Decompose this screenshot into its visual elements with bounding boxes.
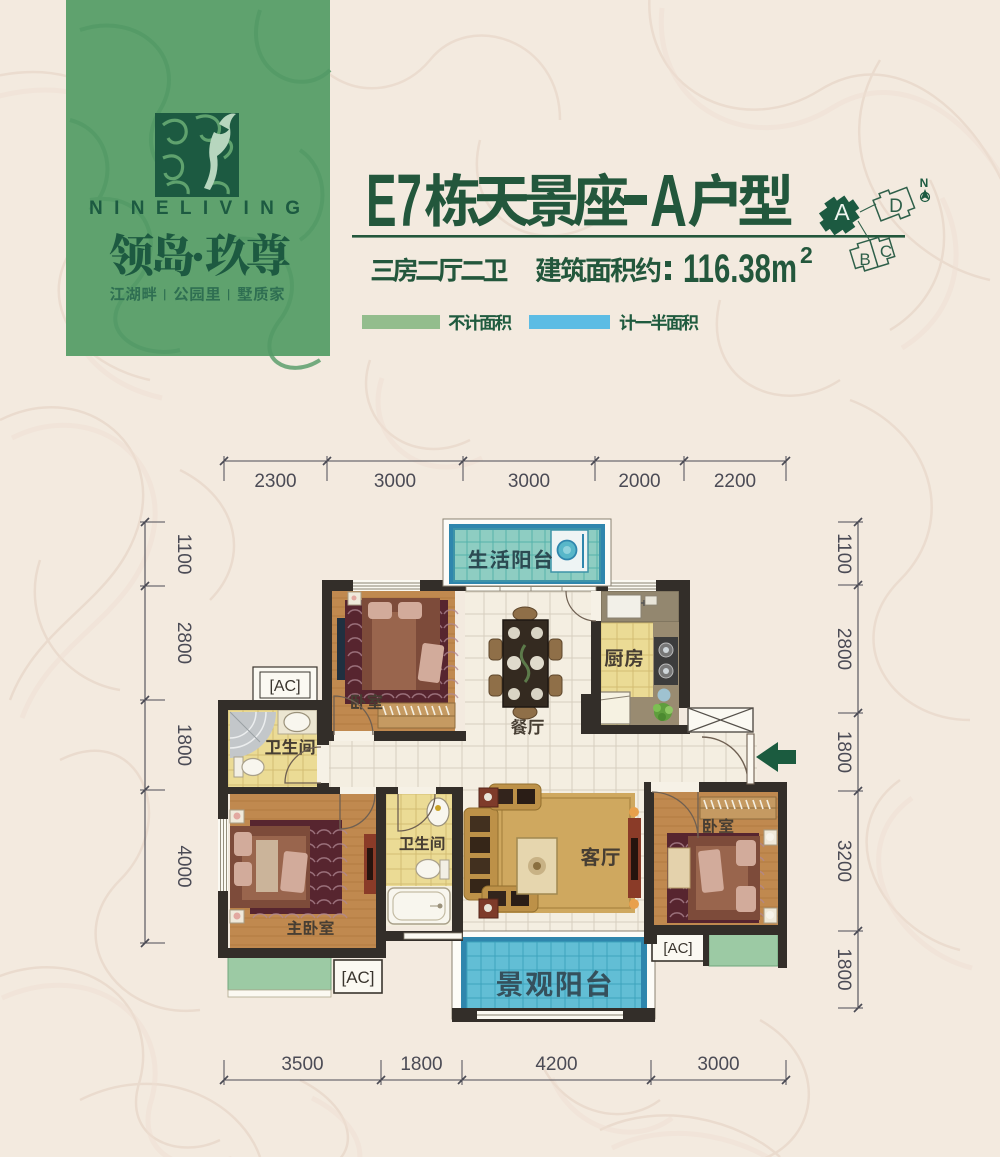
svg-text:1100: 1100	[173, 534, 194, 575]
svg-text:2: 2	[800, 242, 813, 268]
svg-text:[AC]: [AC]	[269, 678, 300, 695]
svg-text:4000: 4000	[173, 845, 194, 887]
svg-text:1800: 1800	[400, 1054, 442, 1075]
svg-text:1800: 1800	[173, 724, 194, 766]
svg-text:2000: 2000	[618, 471, 660, 492]
svg-text:1800: 1800	[833, 948, 854, 990]
svg-text:3000: 3000	[374, 471, 416, 492]
svg-text:A: A	[834, 199, 850, 225]
svg-text:A: A	[650, 159, 687, 242]
svg-text:4200: 4200	[535, 1054, 577, 1075]
svg-text:N: N	[920, 176, 929, 190]
svg-text:3000: 3000	[697, 1054, 739, 1075]
svg-text:3500: 3500	[281, 1054, 323, 1075]
svg-text:2800: 2800	[173, 622, 194, 664]
svg-text:2200: 2200	[714, 471, 756, 492]
svg-text:C: C	[880, 242, 892, 261]
svg-text:1800: 1800	[833, 731, 854, 773]
svg-text:2300: 2300	[254, 471, 296, 492]
svg-text:D: D	[889, 196, 903, 217]
svg-text:116.38m: 116.38m	[683, 247, 797, 291]
svg-text:3200: 3200	[833, 840, 854, 882]
svg-text:[AC]: [AC]	[663, 940, 692, 957]
svg-text:2800: 2800	[833, 628, 854, 670]
svg-text:B: B	[859, 250, 870, 269]
svg-text:1100: 1100	[833, 533, 854, 574]
svg-text:[AC]: [AC]	[341, 968, 374, 987]
svg-text:3000: 3000	[508, 471, 550, 492]
svg-text:E7: E7	[366, 159, 422, 242]
